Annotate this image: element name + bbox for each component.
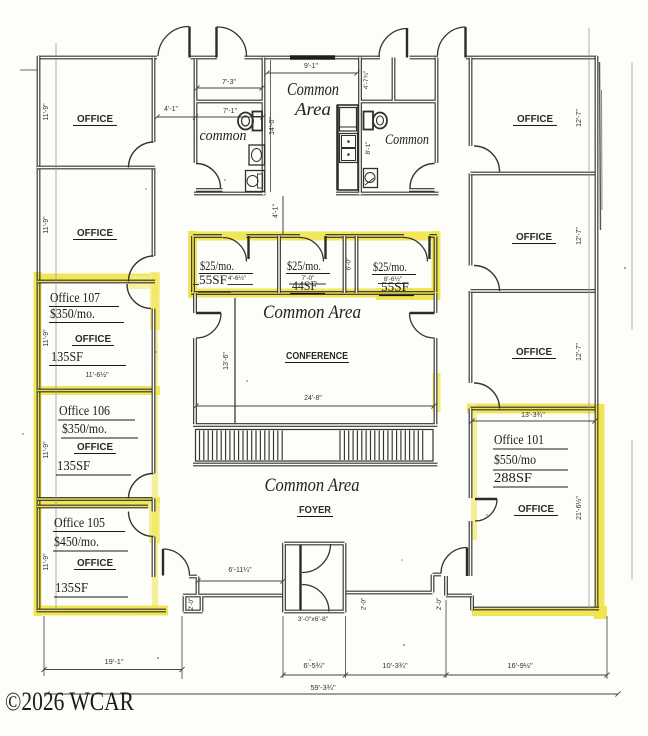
- svg-text:OFFICE: OFFICE: [77, 113, 113, 125]
- svg-text:OFFICE: OFFICE: [518, 503, 554, 515]
- svg-text:11'-9": 11'-9": [43, 441, 50, 459]
- svg-text:16'-9½": 16'-9½": [507, 661, 533, 670]
- svg-text:$25/mo.: $25/mo.: [287, 259, 321, 273]
- svg-text:24'-8": 24'-8": [304, 395, 322, 402]
- svg-text:12'-7": 12'-7": [576, 227, 583, 245]
- svg-text:Common: Common: [287, 79, 339, 99]
- svg-text:$25/mo.: $25/mo.: [373, 260, 407, 274]
- svg-text:FOYER: FOYER: [299, 504, 331, 516]
- svg-text:OFFICE: OFFICE: [516, 346, 552, 358]
- svg-text:OFFICE: OFFICE: [77, 557, 113, 569]
- svg-text:9'-1": 9'-1": [304, 63, 318, 70]
- svg-text:CONFERENCE: CONFERENCE: [286, 351, 348, 362]
- svg-text:$350/mo.: $350/mo.: [50, 307, 95, 322]
- svg-text:11'-6½": 11'-6½": [85, 371, 109, 379]
- svg-text:4'-7¾": 4'-7¾": [363, 70, 370, 89]
- svg-text:6'-5¾": 6'-5¾": [303, 661, 325, 670]
- svg-text:4'-1": 4'-1": [273, 204, 280, 218]
- svg-text:Common Area: Common Area: [263, 303, 361, 323]
- svg-text:Office 105: Office 105: [54, 516, 105, 531]
- svg-text:11'-9": 11'-9": [43, 103, 50, 121]
- svg-text:Office 101: Office 101: [494, 433, 544, 448]
- svg-text:12'-7": 12'-7": [576, 109, 583, 127]
- svg-text:4'-6½": 4'-6½": [228, 274, 247, 282]
- svg-text:12'-7": 12'-7": [576, 343, 583, 361]
- svg-text:2'-0": 2'-0": [436, 598, 443, 610]
- svg-text:55SF: 55SF: [199, 272, 227, 287]
- svg-text:7'-3": 7'-3": [222, 79, 236, 86]
- svg-text:Area: Area: [294, 99, 331, 119]
- svg-text:$25/mo.: $25/mo.: [200, 259, 234, 273]
- svg-text:14'-0": 14'-0": [269, 117, 276, 135]
- svg-text:6'-0": 6'-0": [346, 257, 353, 271]
- svg-text:288SF: 288SF: [494, 471, 532, 486]
- svg-text:OFFICE: OFFICE: [77, 227, 113, 239]
- svg-text:2'-0": 2'-0": [361, 598, 368, 610]
- svg-text:OFFICE: OFFICE: [75, 333, 111, 345]
- svg-text:13'-3¾": 13'-3¾": [521, 412, 545, 419]
- svg-text:4'-1": 4'-1": [164, 106, 178, 113]
- svg-text:8'-1": 8'-1": [365, 141, 372, 155]
- svg-text:2'-0": 2'-0": [188, 598, 195, 610]
- svg-text:OFFICE: OFFICE: [77, 441, 113, 453]
- svg-text:Common: Common: [385, 132, 429, 148]
- svg-text:©2026 WCAR: ©2026 WCAR: [5, 687, 135, 716]
- svg-text:135SF: 135SF: [57, 459, 90, 474]
- svg-text:$350/mo.: $350/mo.: [62, 422, 107, 437]
- svg-text:10'-3¾": 10'-3¾": [382, 661, 408, 670]
- svg-text:8'-6½": 8'-6½": [384, 275, 403, 283]
- svg-text:19'-1": 19'-1": [104, 657, 123, 666]
- svg-text:OFFICE: OFFICE: [516, 231, 552, 243]
- svg-text:$450/mo.: $450/mo.: [54, 535, 99, 550]
- svg-text:11'-9": 11'-9": [43, 553, 50, 571]
- svg-text:OFFICE: OFFICE: [517, 113, 553, 125]
- svg-text:3'-0"x6'-8": 3'-0"x6'-8": [298, 616, 329, 623]
- svg-text:6'-11¼": 6'-11¼": [228, 567, 252, 574]
- svg-text:$550/mo: $550/mo: [494, 453, 536, 468]
- svg-text:21'-6½": 21'-6½": [575, 496, 583, 520]
- svg-text:11'-9": 11'-9": [43, 216, 50, 234]
- svg-text:13'-6": 13'-6": [223, 352, 230, 370]
- svg-text:Common Area: Common Area: [265, 476, 360, 496]
- svg-text:Office 107: Office 107: [50, 291, 100, 306]
- svg-text:common: common: [200, 128, 247, 144]
- svg-text:Office 106: Office 106: [59, 404, 110, 419]
- svg-text:7'-0": 7'-0": [302, 275, 316, 282]
- svg-text:135SF: 135SF: [51, 350, 83, 365]
- svg-text:11'-9": 11'-9": [43, 329, 50, 347]
- svg-text:59'-3¾": 59'-3¾": [310, 683, 336, 692]
- svg-text:7'-1": 7'-1": [223, 108, 237, 115]
- svg-text:135SF: 135SF: [55, 581, 88, 596]
